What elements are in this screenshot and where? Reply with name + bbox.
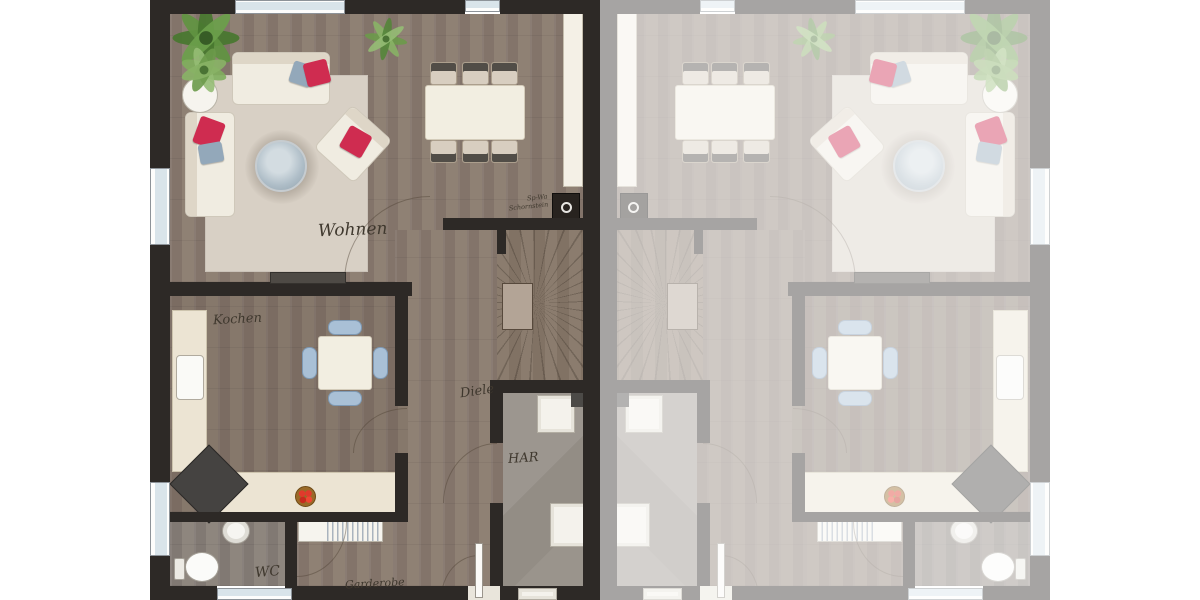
wall-living-stairs (443, 218, 583, 230)
wall-utility-left (697, 393, 710, 443)
dining-chair (743, 140, 770, 163)
dining-chair (491, 140, 518, 163)
window (150, 482, 170, 556)
wall-living-stairs (617, 218, 757, 230)
kitchen-chair (883, 347, 898, 379)
window (217, 588, 292, 600)
wall-left (1030, 245, 1050, 482)
wall-kitchen-bottom (792, 512, 1030, 522)
party-wall (600, 0, 617, 600)
wall-bottom (150, 586, 217, 600)
floor-mat (617, 393, 629, 407)
wall-kitchen-hall (395, 453, 408, 512)
armchair (318, 107, 388, 182)
toilet (981, 552, 1015, 582)
plant-icon (968, 42, 1024, 98)
window (1030, 168, 1050, 245)
wall-left (1030, 0, 1050, 168)
kitchen-chair (302, 347, 317, 379)
kitchen-table (828, 336, 882, 390)
pillow-blue (975, 141, 1002, 165)
armchair-seat (314, 104, 393, 183)
heater (854, 272, 930, 284)
unit-floorplan: Wohnen Kochen Diele HAR WC Garderobe Sp-… (600, 0, 1050, 600)
kitchen-chair (373, 347, 388, 379)
plant-icon (176, 42, 232, 98)
dining-chair (430, 140, 457, 163)
unit-right: Wohnen Kochen Diele HAR WC Garderobe Sp-… (600, 0, 1050, 600)
dining-chair (491, 62, 518, 85)
wall-stub-stairs (694, 230, 703, 254)
wall-left (150, 0, 170, 168)
toilet (185, 552, 219, 582)
wall-kitchen-bottom (170, 512, 408, 522)
sofa-vertical (185, 112, 235, 217)
wall-living-kitchen (170, 282, 412, 296)
window (150, 168, 170, 245)
staircase-landing (667, 283, 698, 330)
wall-utility-left (490, 503, 503, 586)
chimney-flue-icon (628, 202, 639, 213)
plant-icon (361, 14, 411, 64)
wall-top (735, 0, 855, 14)
window (235, 0, 345, 14)
dining-chair (430, 62, 457, 85)
pillow-blue (197, 141, 224, 165)
window (465, 0, 500, 12)
armchair-seat (808, 104, 887, 183)
room-label-cloakroom: Garderobe (345, 576, 405, 590)
kitchen-chair (812, 347, 827, 379)
wall-kitchen-hall (792, 453, 805, 512)
washing-machine (625, 395, 663, 433)
kitchen-sink (996, 355, 1024, 400)
dining-chair (462, 62, 489, 85)
dining-table (675, 85, 775, 140)
washing-machine (537, 395, 575, 433)
sideboard (563, 12, 583, 187)
sofa-backrest (1003, 113, 1014, 216)
dining-chair (743, 62, 770, 85)
dining-chair (682, 62, 709, 85)
staircase-landing (502, 283, 533, 330)
wall-living-kitchen (788, 282, 1030, 296)
entry-threshold (468, 586, 500, 600)
sofa-backrest (186, 113, 197, 216)
staircase (497, 230, 583, 380)
dining-chair (711, 62, 738, 85)
window (908, 588, 983, 600)
wall-stub-stairs (497, 230, 506, 254)
entry-threshold (700, 586, 732, 600)
dining-chair (462, 140, 489, 163)
kitchen-chair (838, 391, 872, 406)
floorplan-canvas: Wohnen Kochen Diele HAR WC Garderobe Sp-… (0, 0, 1200, 600)
window (1030, 482, 1050, 556)
entry-door (717, 543, 725, 598)
dining-chair (711, 140, 738, 163)
unit-left: Wohnen Kochen Diele HAR WC Garderobe Sp-… (150, 0, 600, 600)
staircase (617, 230, 703, 380)
utility-appliance (643, 588, 682, 600)
sofa-vertical (965, 112, 1015, 217)
coffee-table (255, 140, 307, 192)
kitchen-sink (176, 355, 204, 400)
kitchen-chair (328, 391, 362, 406)
heater (270, 272, 346, 284)
floor-mat (571, 393, 583, 407)
window (855, 0, 965, 14)
kitchen-chair (328, 320, 362, 335)
unit-floorplan: Wohnen Kochen Diele HAR WC Garderobe Sp-… (150, 0, 600, 600)
room-label-utility: HAR (508, 451, 539, 466)
window (700, 0, 735, 12)
dining-table (425, 85, 525, 140)
wall-kitchen-hall (395, 296, 408, 406)
party-wall (583, 0, 600, 600)
wall-utility-top (490, 380, 583, 393)
kitchen-chair (838, 320, 872, 335)
dining-chair (682, 140, 709, 163)
kitchen-table (318, 336, 372, 390)
room-label-living: Wohnen (318, 221, 388, 240)
wall-utility-left (697, 503, 710, 586)
room-label-wc: WC (254, 564, 280, 580)
wall-bottom (983, 586, 1050, 600)
toilet-tank (174, 558, 185, 580)
utility-appliance (612, 503, 650, 547)
room-label-kitchen: Kochen (213, 312, 263, 328)
wall-utility-top (617, 380, 710, 393)
armchair (812, 107, 882, 182)
chimney-flue-icon (561, 202, 572, 213)
wall-kitchen-hall (792, 296, 805, 406)
fruit-bowl (884, 486, 905, 507)
coffee-table (893, 140, 945, 192)
wall-bottom (732, 586, 908, 600)
utility-appliance (518, 588, 557, 600)
toilet-tank (1015, 558, 1026, 580)
wall-top (345, 0, 465, 14)
plant-icon (789, 14, 839, 64)
wall-utility-left (490, 393, 503, 443)
entry-door (475, 543, 483, 598)
wall-left (150, 245, 170, 482)
sideboard (617, 12, 637, 187)
fruit-bowl (295, 486, 316, 507)
